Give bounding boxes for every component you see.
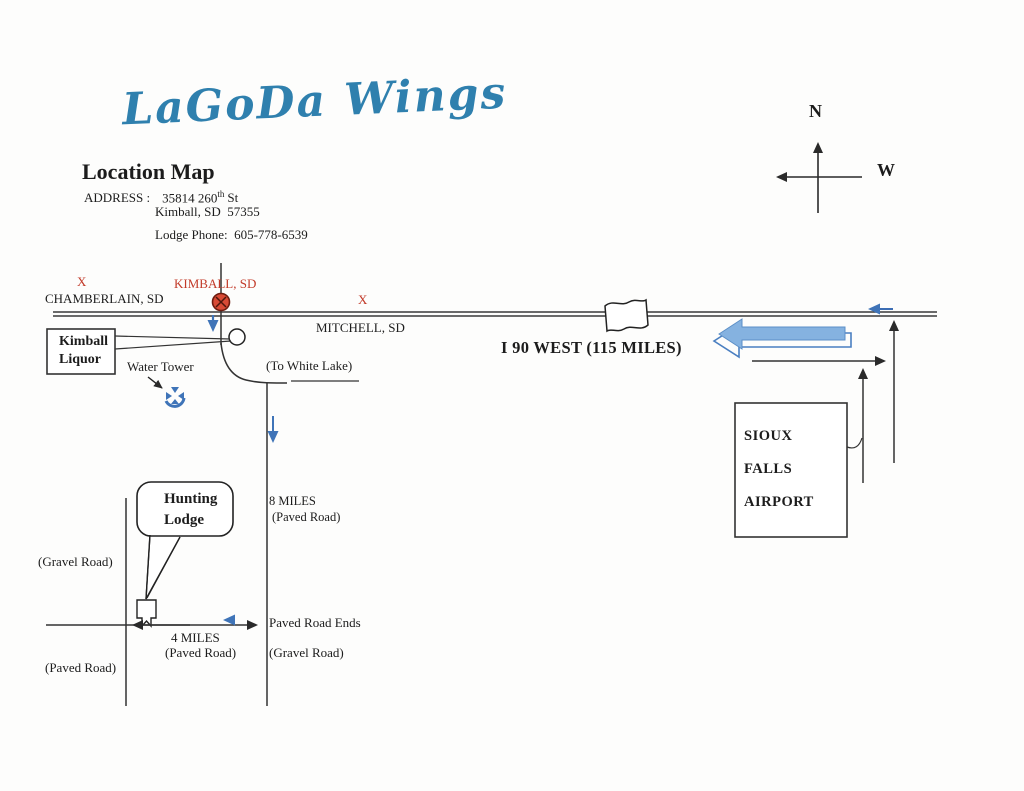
lodge-phone: Lodge Phone: 605-778-6539: [155, 227, 308, 243]
chamberlain-label: CHAMBERLAIN, SD: [45, 291, 163, 307]
kimball-label: KIMBALL, SD: [174, 276, 256, 292]
junction-circle-icon: [229, 329, 245, 345]
location-map-page: LaGoDa Wings Location Map ADDRESS :35814…: [0, 0, 1024, 791]
gravel-road-south-label: (Gravel Road): [269, 645, 344, 661]
chamberlain-x-mark: X: [77, 274, 86, 290]
miles8-road-label: (Paved Road): [272, 510, 340, 525]
paved-road-west-label: (Paved Road): [45, 660, 116, 676]
miles4-label: 4 MILES: [171, 630, 220, 646]
water-tower-arrow-icon: [148, 377, 162, 388]
compass-icon: [778, 144, 862, 213]
kimball-city-marker-icon: [213, 294, 230, 311]
paved-road-ends-label: Paved Road Ends: [269, 615, 361, 631]
mitchell-x-mark: X: [358, 292, 367, 308]
i90-highway-line: [53, 312, 937, 316]
address-city: Kimball, SD 57355: [155, 204, 260, 220]
road-break-icon: [605, 300, 648, 331]
hunting-lodge-label: HuntingLodge: [164, 489, 217, 530]
gravel-road-west-label: (Gravel Road): [38, 554, 113, 570]
i90-west-label: I 90 WEST (115 MILES): [501, 338, 682, 358]
miles4-road-label: (Paved Road): [165, 645, 236, 661]
compass-west-label: W: [877, 160, 895, 181]
airport-label: SIOUXFALLSAIRPORT: [744, 420, 814, 519]
water-tower-label: Water Tower: [127, 359, 194, 375]
i90-west-arrow-icon: [714, 319, 851, 357]
mitchell-label: MITCHELL, SD: [316, 320, 405, 336]
miles8-label: 8 MILES: [269, 494, 316, 509]
compass-north-label: N: [809, 101, 822, 122]
location-map-heading: Location Map: [82, 159, 215, 185]
water-tower-icon: [166, 387, 184, 406]
kimball-liquor-connector-lines: [115, 336, 231, 349]
kimball-liquor-label: KimballLiquor: [59, 333, 108, 368]
lodge-house-icon: [137, 600, 156, 626]
white-lake-label: (To White Lake): [266, 358, 352, 374]
